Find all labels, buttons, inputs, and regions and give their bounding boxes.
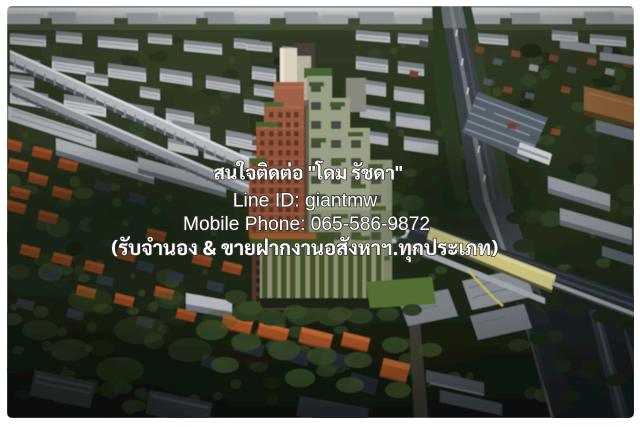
svg-text:Mobile Phone: 065-586-9872: Mobile Phone: 065-586-9872 [183,214,430,235]
svg-text:Line ID: giantmw: Line ID: giantmw [233,191,378,212]
